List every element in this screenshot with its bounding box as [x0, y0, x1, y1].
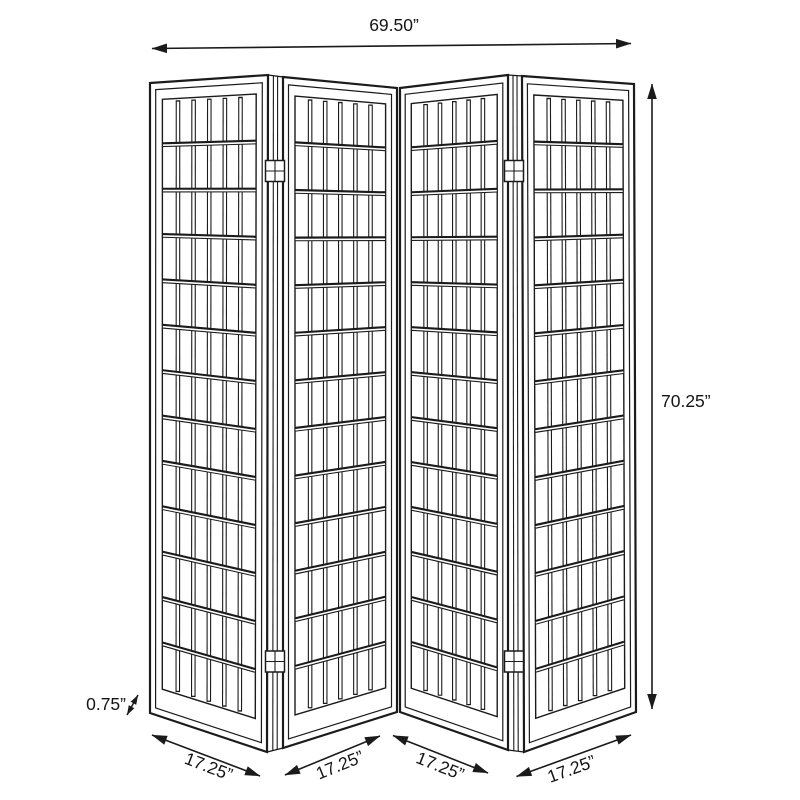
total-width-label: 69.50”	[369, 15, 419, 35]
panel-thickness-label: 0.75”	[86, 694, 126, 714]
hinge	[266, 651, 285, 672]
panel-width-label-1: 17.25”	[182, 748, 236, 785]
screen-panel-1	[150, 75, 268, 752]
panel-width-label-3: 17.25”	[413, 748, 467, 785]
total-height-label: 70.25”	[661, 391, 711, 411]
screen-panel-4	[522, 76, 636, 752]
screen-panel-3	[400, 75, 508, 750]
hinge	[266, 161, 285, 182]
hinge	[505, 651, 524, 672]
total-width-arrow	[152, 44, 631, 49]
screen-panel-2	[283, 77, 397, 748]
diagram-canvas: 69.50” 70.25” 0.75” 17.25” 17.25” 17.25”…	[0, 0, 800, 800]
hinge	[505, 161, 524, 182]
panel-rail-highlight	[412, 239, 497, 240]
folding-screen	[150, 75, 636, 752]
room-divider-dimension-diagram: 69.50” 70.25” 0.75” 17.25” 17.25” 17.25”…	[0, 0, 800, 800]
panel-thickness-arrow	[127, 695, 138, 715]
